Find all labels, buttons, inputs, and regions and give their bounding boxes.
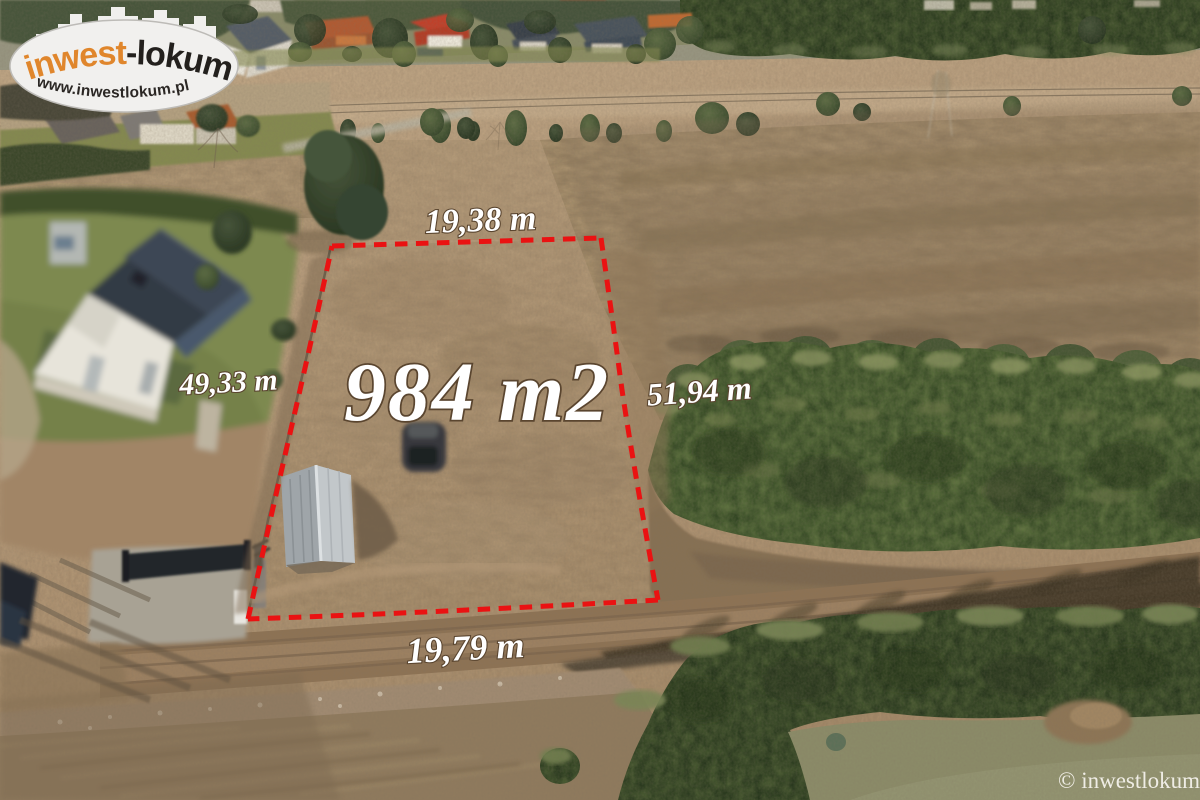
svg-text:49,33 m: 49,33 m bbox=[178, 363, 279, 401]
svg-text:984 m2: 984 m2 bbox=[344, 346, 610, 439]
svg-text:19,79 m: 19,79 m bbox=[405, 625, 525, 671]
svg-text:19,38 m: 19,38 m bbox=[424, 200, 537, 241]
svg-text:© inwestlokum.pl: © inwestlokum.pl bbox=[1058, 768, 1200, 793]
svg-text:51,94 m: 51,94 m bbox=[646, 369, 753, 412]
